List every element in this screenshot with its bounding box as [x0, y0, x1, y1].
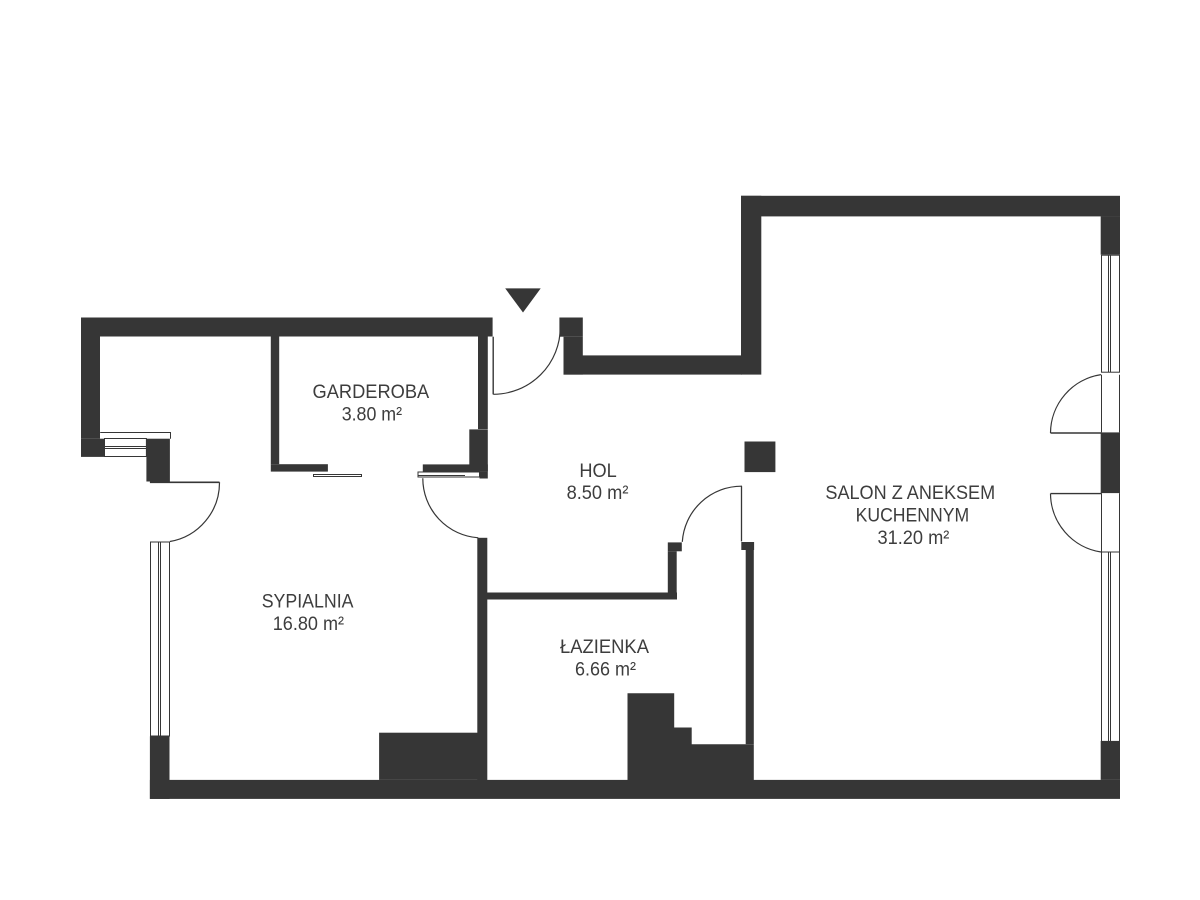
svg-text:16.80 m²: 16.80 m²	[273, 614, 344, 635]
svg-text:ŁAZIENKA: ŁAZIENKA	[560, 637, 649, 658]
svg-text:GARDEROBA: GARDEROBA	[313, 382, 430, 403]
svg-text:3.80 m²: 3.80 m²	[342, 405, 402, 426]
svg-text:31.20 m²: 31.20 m²	[877, 528, 949, 549]
svg-text:SALON Z ANEKSEM: SALON Z ANEKSEM	[825, 483, 995, 504]
svg-text:KUCHENNYM: KUCHENNYM	[856, 506, 970, 527]
svg-text:8.50 m²: 8.50 m²	[567, 483, 629, 504]
svg-text:6.66 m²: 6.66 m²	[575, 659, 636, 680]
svg-text:SYPIALNIA: SYPIALNIA	[262, 592, 354, 613]
svg-text:HOL: HOL	[579, 461, 616, 482]
